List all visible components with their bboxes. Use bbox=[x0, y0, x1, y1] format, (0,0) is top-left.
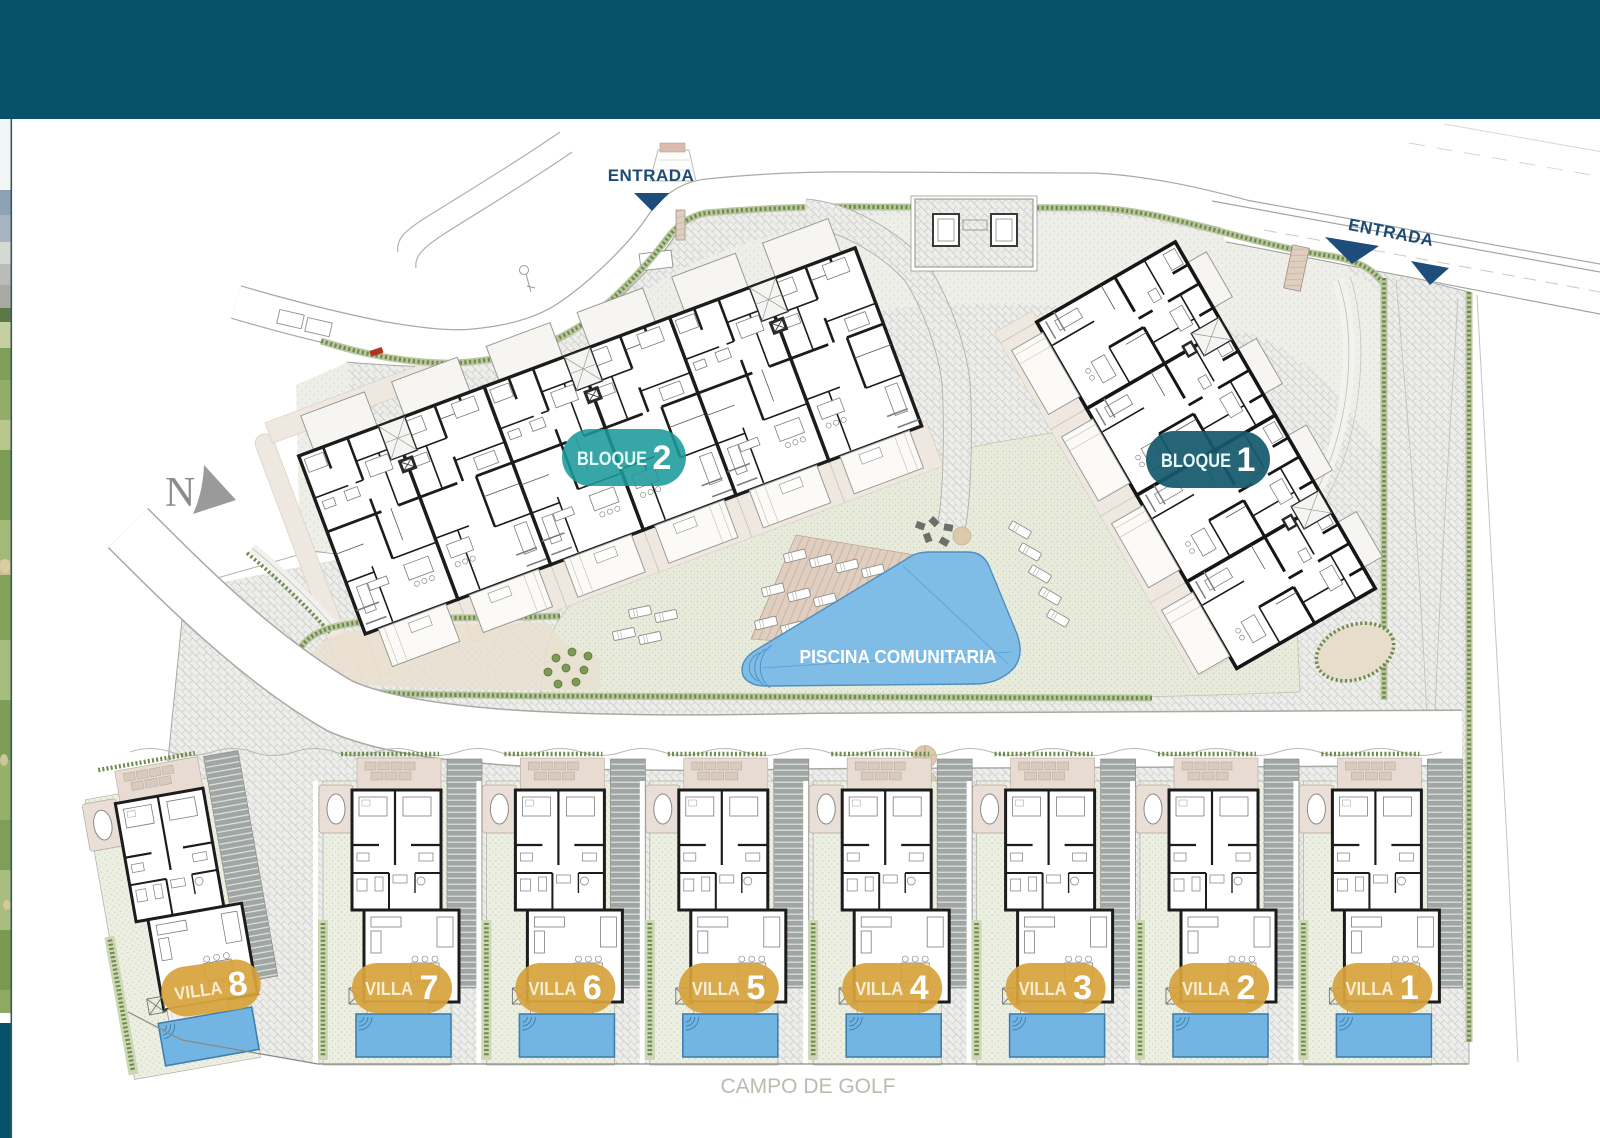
svg-text:N: N bbox=[165, 470, 195, 516]
svg-text:VILLA: VILLA bbox=[1345, 979, 1393, 999]
svg-text:1: 1 bbox=[1237, 441, 1256, 479]
svg-text:5: 5 bbox=[746, 969, 765, 1007]
svg-text:VILLA: VILLA bbox=[528, 979, 576, 999]
svg-text:ENTRADA: ENTRADA bbox=[608, 166, 695, 185]
svg-text:2: 2 bbox=[653, 439, 672, 477]
svg-text:PISCINA COMUNITARIA: PISCINA COMUNITARIA bbox=[800, 647, 997, 667]
svg-text:2: 2 bbox=[1237, 969, 1256, 1007]
svg-text:4: 4 bbox=[910, 969, 929, 1007]
svg-text:3: 3 bbox=[1073, 969, 1092, 1007]
svg-text:1: 1 bbox=[1400, 969, 1419, 1007]
svg-text:7: 7 bbox=[420, 969, 439, 1007]
svg-text:VILLA: VILLA bbox=[365, 979, 413, 999]
svg-text:6: 6 bbox=[583, 969, 602, 1007]
svg-text:VILLA: VILLA bbox=[1182, 979, 1230, 999]
svg-text:BLOQUE: BLOQUE bbox=[1161, 451, 1231, 472]
svg-text:VILLA: VILLA bbox=[855, 979, 903, 999]
svg-text:BLOQUE: BLOQUE bbox=[577, 449, 647, 470]
svg-text:VILLA: VILLA bbox=[692, 979, 740, 999]
svg-text:VILLA: VILLA bbox=[1019, 979, 1067, 999]
svg-text:CAMPO DE GOLF: CAMPO DE GOLF bbox=[721, 1075, 896, 1098]
